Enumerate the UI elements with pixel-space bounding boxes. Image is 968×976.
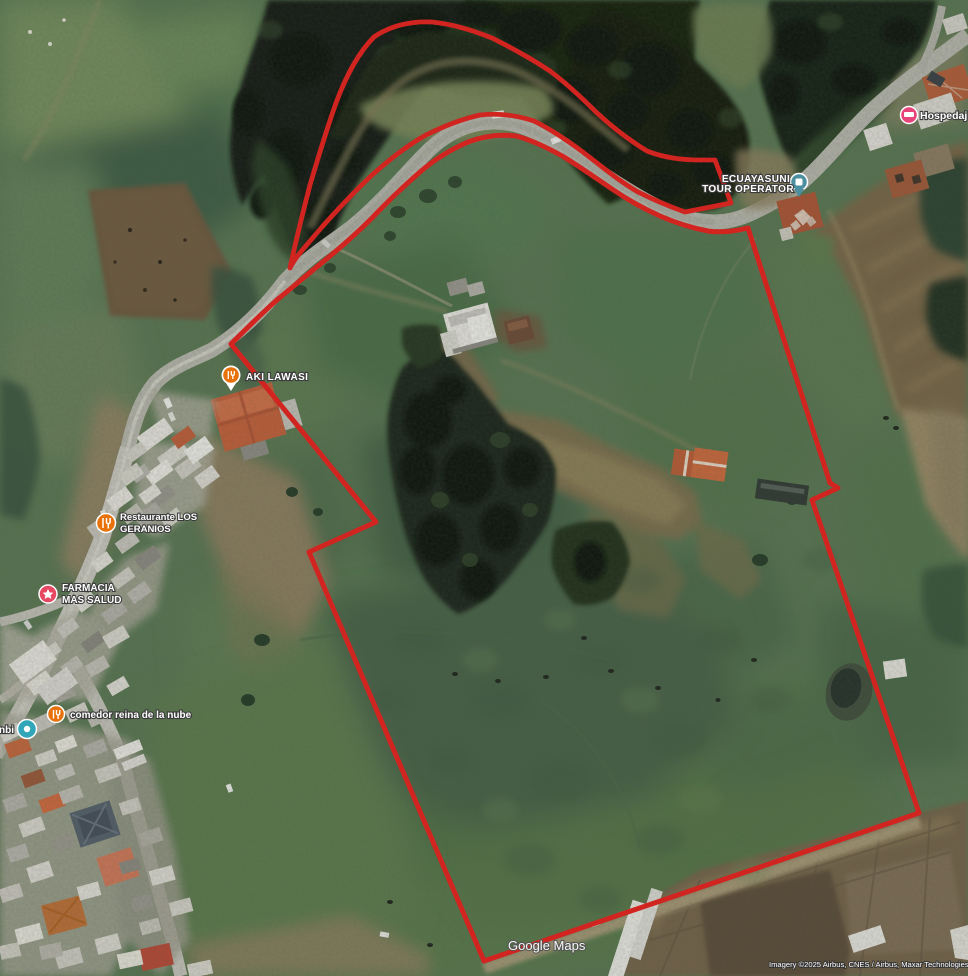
svg-text:AKI LAWASI: AKI LAWASI bbox=[246, 372, 308, 383]
svg-text:Imagery ©2025 Airbus, CNES / A: Imagery ©2025 Airbus, CNES / Airbus, Max… bbox=[769, 960, 968, 969]
svg-text:FARMACIA: FARMACIA bbox=[62, 583, 115, 594]
svg-text:Google Maps: Google Maps bbox=[508, 938, 586, 953]
svg-text:MAS SALUD: MAS SALUD bbox=[62, 595, 121, 606]
svg-text:comedor reina de la nube: comedor reina de la nube bbox=[70, 710, 192, 721]
svg-text:GERANIOS: GERANIOS bbox=[120, 524, 171, 535]
svg-text:TOUR OPERATOR: TOUR OPERATOR bbox=[702, 184, 794, 195]
svg-text:Hospedaj: Hospedaj bbox=[920, 110, 967, 122]
svg-text:Restaurante LOS: Restaurante LOS bbox=[120, 512, 197, 523]
svg-text:nbi: nbi bbox=[0, 725, 14, 736]
